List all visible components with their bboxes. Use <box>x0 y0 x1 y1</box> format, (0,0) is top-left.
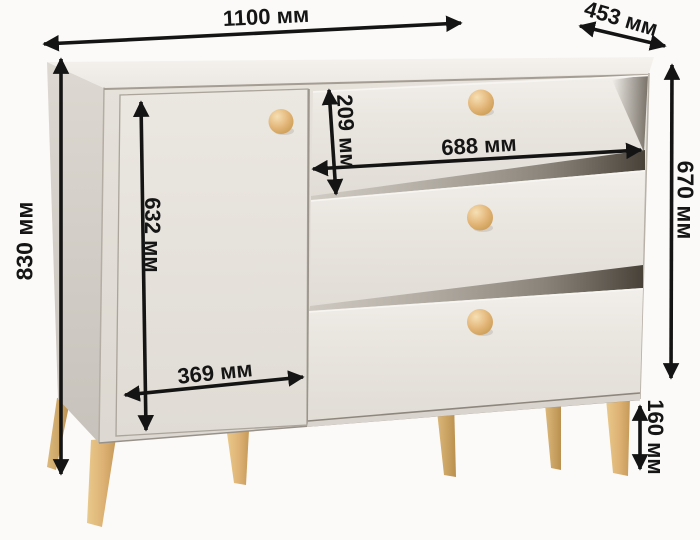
leg-front-right <box>606 396 630 476</box>
dimension-label-height: 830 мм <box>14 202 37 281</box>
dimension-label-width: 1100 мм <box>222 4 309 30</box>
commode-render <box>0 0 700 540</box>
drawer-1-knob <box>468 90 494 116</box>
dimension-label-door-height: 632 мм <box>141 197 163 272</box>
leg-front-left <box>87 438 116 527</box>
side-panel <box>47 62 104 443</box>
leg-front-middle <box>227 430 249 485</box>
dimension-label-leg-height: 160 мм <box>644 399 666 474</box>
leg-back-right <box>545 402 561 470</box>
dimension-label-drawer-width: 688 мм <box>441 133 518 160</box>
drawer-2-knob <box>467 205 493 231</box>
dimension-label-body-height: 670 мм <box>674 161 697 240</box>
drawer-3-knob <box>467 309 493 335</box>
dimension-label-drawer-height: 209 мм <box>333 94 359 170</box>
furniture-dimensions-diagram: 1100 мм 453 мм 830 мм 632 мм 209 мм 688 … <box>0 0 700 540</box>
door-knob <box>269 109 294 134</box>
